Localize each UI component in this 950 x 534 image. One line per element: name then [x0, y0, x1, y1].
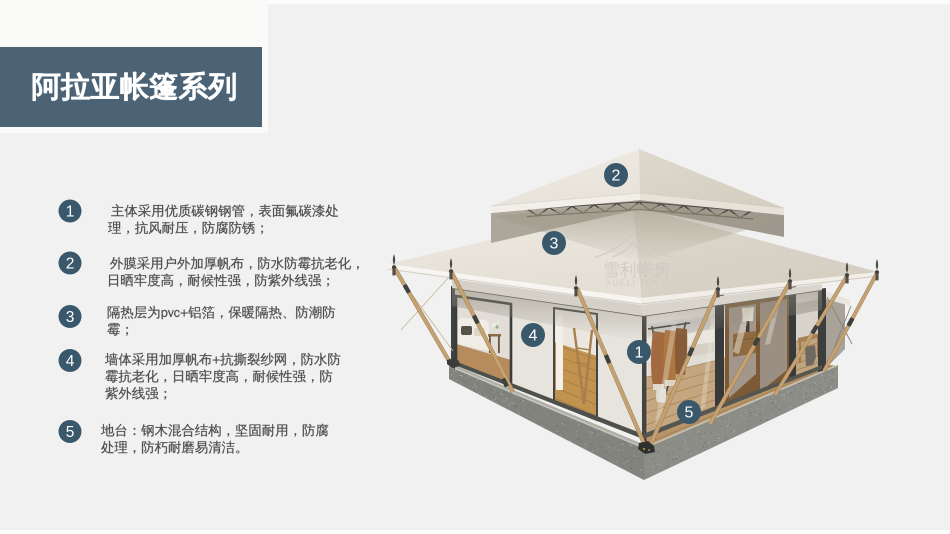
- svg-text:1: 1: [635, 345, 644, 362]
- svg-text:XUELI TENT: XUELI TENT: [606, 279, 666, 288]
- svg-text:3: 3: [550, 236, 559, 253]
- svg-text:5: 5: [66, 424, 75, 441]
- svg-text:5: 5: [685, 405, 694, 422]
- svg-text:3: 3: [66, 309, 75, 326]
- svg-text:2: 2: [66, 255, 75, 272]
- svg-text:4: 4: [66, 353, 75, 370]
- svg-text:4: 4: [529, 328, 538, 345]
- svg-text:1: 1: [66, 203, 75, 220]
- svg-text:2: 2: [612, 168, 621, 185]
